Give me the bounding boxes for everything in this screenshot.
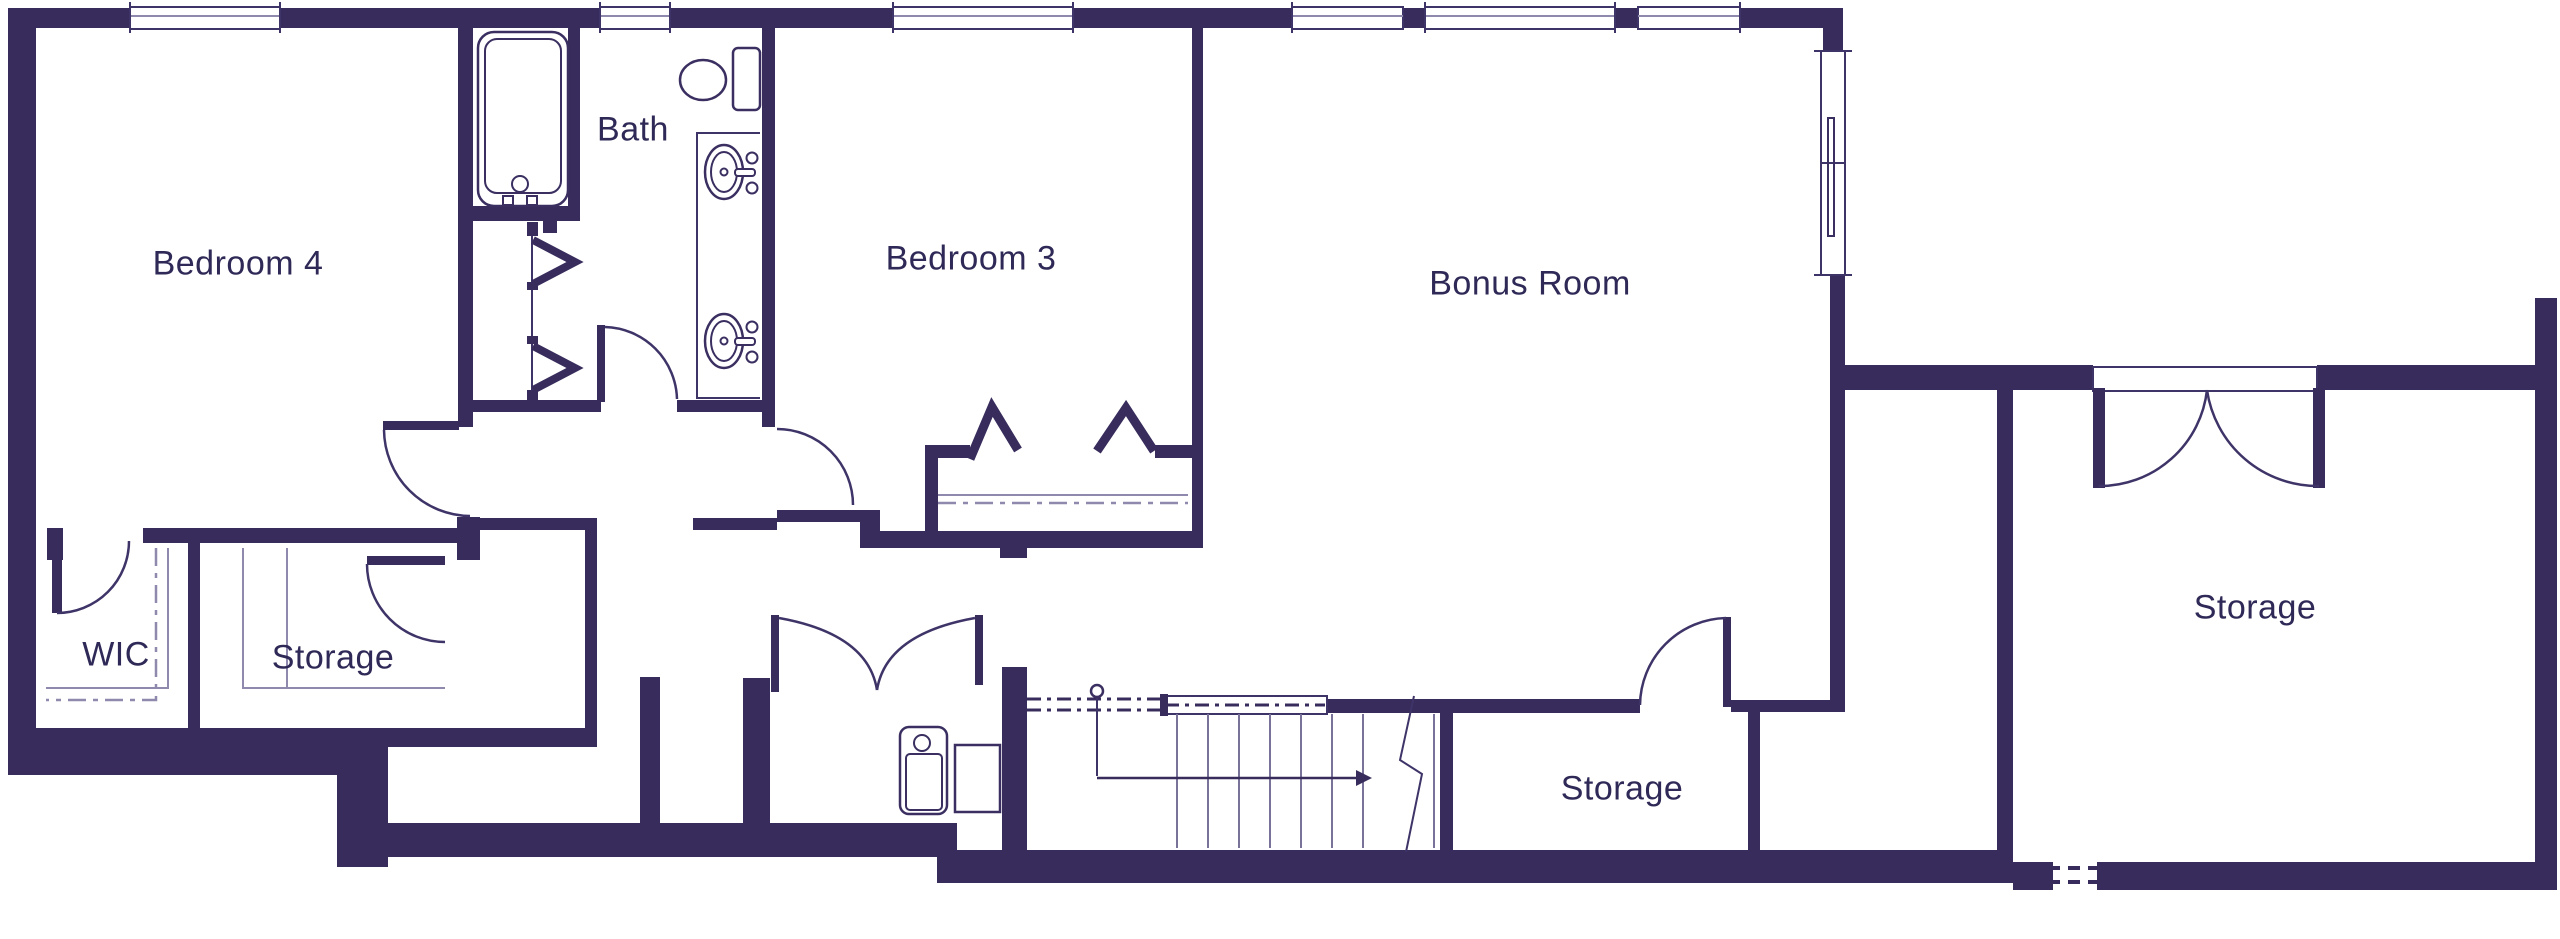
wall-bed3-bonus	[1192, 28, 1203, 531]
window-bonus-right-sliding	[1814, 51, 1852, 275]
wall-stair-low	[1327, 699, 1640, 713]
stair-rail-cap	[1160, 694, 1168, 716]
wall-bath-bottom	[677, 400, 775, 412]
wall-closet-front	[938, 445, 970, 458]
doors	[52, 325, 2325, 892]
wall-top	[1073, 8, 1292, 28]
toilet-icon	[680, 48, 760, 110]
wall-wic-bottom	[36, 728, 597, 747]
stair-direction-arrow	[1097, 770, 1372, 786]
wall-storagebm-right	[1748, 712, 1760, 852]
room-label-storage-right: Storage	[2194, 589, 2317, 628]
wall-bottom	[937, 850, 2013, 883]
wall-bonus-right	[1830, 273, 1845, 712]
wall-top	[280, 8, 600, 28]
linen-closet	[527, 222, 575, 402]
door-closet-bifold	[970, 407, 1154, 459]
wall-utility-right	[1002, 667, 1027, 850]
wall-bottom	[388, 823, 957, 857]
opening-dashed	[2048, 860, 2102, 892]
window-bonus-2	[1425, 2, 1615, 33]
wall-storagebm-top	[1731, 700, 1845, 712]
utility-unit-icon	[955, 745, 1000, 812]
room-label-bedroom-4: Bedroom 4	[153, 245, 324, 284]
wic-rod-line	[46, 548, 156, 700]
room-label-wic: WIC	[82, 636, 150, 675]
sink-icon	[705, 145, 758, 199]
wall-right	[2535, 298, 2557, 890]
wall-bottom-step	[337, 775, 388, 867]
window-bonus-3	[1638, 2, 1740, 33]
water-heater-icon	[900, 727, 947, 814]
door-bedroom3	[777, 429, 853, 505]
wall-bath-left	[458, 28, 473, 427]
wall-hall-top	[693, 518, 777, 530]
room-label-bonus-room: Bonus Room	[1429, 265, 1631, 304]
exterior-walls	[8, 8, 2557, 890]
wall-closet-front	[1155, 445, 1192, 458]
window-mullion	[1615, 8, 1638, 28]
wall-top	[670, 8, 893, 28]
room-label-bath: Bath	[597, 111, 669, 150]
window-bath	[600, 2, 670, 33]
door-storage-bottom-left	[367, 556, 445, 642]
vanity-counter	[697, 133, 760, 398]
wall-storagebm-left	[1440, 712, 1453, 852]
window-bedroom3	[893, 2, 1073, 33]
wall-under-tub	[458, 206, 580, 221]
stair-treads	[1177, 714, 1434, 848]
door-utility-double	[771, 615, 983, 692]
window-bonus-1	[1292, 2, 1403, 33]
door-bedroom4	[383, 421, 470, 516]
window-bedroom4	[130, 2, 280, 33]
wall-bottom-right	[2097, 862, 2557, 890]
wall-utility-left	[743, 678, 770, 845]
wall-hall-lower	[640, 677, 660, 823]
wall-bath-bed3	[762, 28, 775, 427]
newel-post-icon	[1091, 685, 1103, 697]
wall-bottom-right	[2013, 862, 2053, 890]
wall-storage-top	[2317, 365, 2535, 390]
sink-icon	[705, 314, 758, 368]
wall-bed3-bottom	[866, 531, 1203, 548]
floor-plan-drawing	[0, 0, 2560, 939]
door-bath	[597, 325, 677, 402]
fixtures	[478, 32, 1000, 814]
wall-storagebl-right	[585, 528, 597, 747]
room-label-bedroom-3: Bedroom 3	[886, 240, 1057, 279]
bathtub-icon	[478, 32, 568, 206]
wall-tub-right	[568, 28, 580, 206]
window-mullion	[1403, 8, 1425, 28]
wall-linen-stub	[543, 221, 557, 233]
wall-landing-post	[1000, 540, 1027, 558]
stair-break-line	[1400, 696, 1422, 852]
wall-wic-right	[188, 543, 200, 728]
floor-plan: Bedroom 4 Bath Bedroom 3 Bonus Room WIC …	[0, 0, 2560, 939]
wall-storage-top	[1832, 365, 2093, 390]
wall-corner-post	[1823, 8, 1843, 53]
wall-closet-left	[925, 445, 938, 531]
wall-bed4-bottom	[143, 528, 458, 543]
door-wic	[52, 541, 129, 613]
door-storage-right-double	[2093, 367, 2325, 488]
wall-hall-top	[473, 518, 597, 530]
wall-top	[8, 8, 130, 28]
room-label-storage-bottom-left: Storage	[272, 639, 395, 678]
wall-left	[8, 8, 36, 775]
windows	[130, 2, 1852, 275]
wall-storager-left	[1997, 390, 2013, 862]
door-storage-bottom-middle	[1640, 617, 1731, 707]
room-label-storage-bottom-middle: Storage	[1561, 770, 1684, 809]
